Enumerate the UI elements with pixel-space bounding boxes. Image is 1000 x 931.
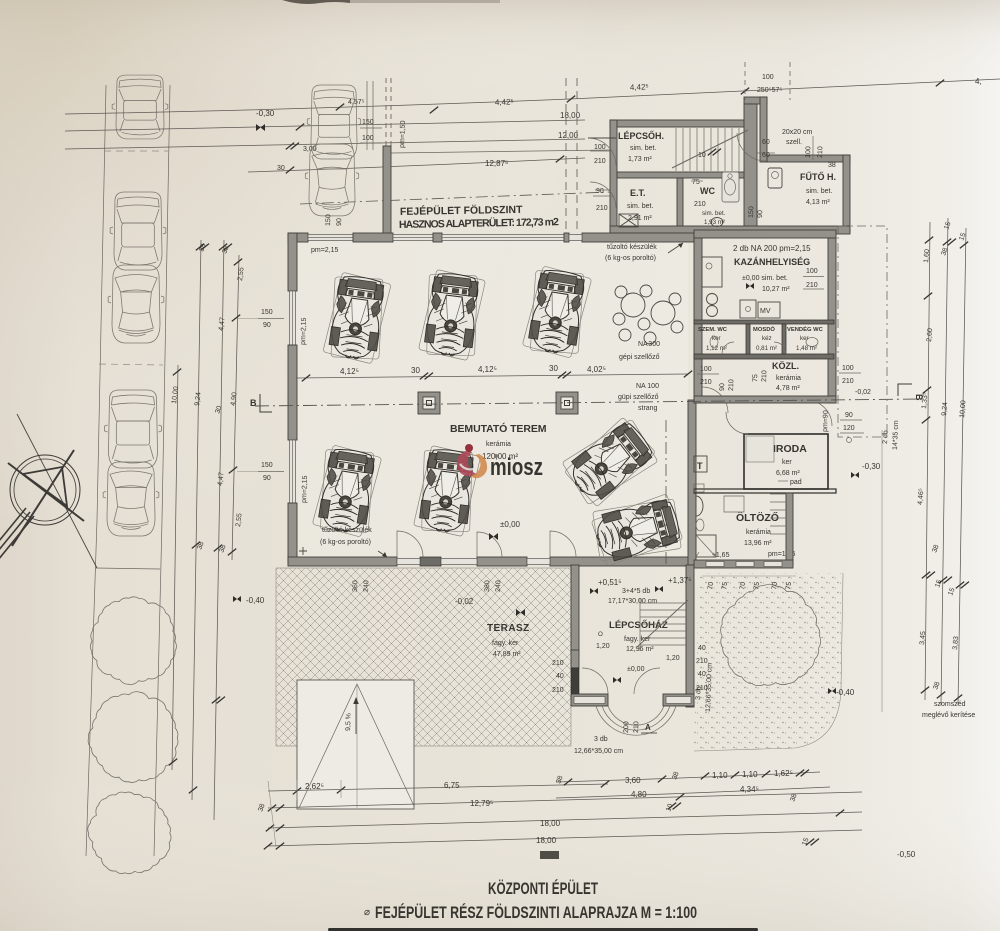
svg-text:ÖLTÖZŐ: ÖLTÖZŐ <box>736 511 779 524</box>
svg-text:BEMUTATÓ TEREM: BEMUTATÓ TEREM <box>450 422 547 435</box>
svg-text:3 db: 3 db <box>594 736 608 743</box>
svg-text:38: 38 <box>828 162 836 169</box>
svg-text:120: 120 <box>843 425 855 432</box>
svg-text:kerámia: kerámia <box>486 441 511 448</box>
svg-text:pm=90: pm=90 <box>822 410 830 432</box>
svg-text:szell.: szell. <box>786 139 802 146</box>
svg-text:1,10: 1,10 <box>712 771 728 780</box>
svg-text:210: 210 <box>596 205 608 212</box>
svg-text:210: 210 <box>700 379 712 386</box>
svg-text:meglévő kerítése: meglévő kerítése <box>922 712 975 719</box>
svg-text:MOSDÓ: MOSDÓ <box>753 325 775 333</box>
svg-text:KÖZPONTI ÉPÜLET: KÖZPONTI ÉPÜLET <box>488 879 598 898</box>
svg-text:18,00: 18,00 <box>540 819 561 828</box>
svg-text:30: 30 <box>549 364 558 373</box>
svg-text:9,5 %: 9,5 % <box>345 713 353 731</box>
svg-text:100: 100 <box>805 146 812 158</box>
svg-text:1,62⁵: 1,62⁵ <box>774 769 793 778</box>
svg-text:4,12⁵: 4,12⁵ <box>478 365 497 374</box>
svg-text:4,13 m²: 4,13 m² <box>806 199 830 206</box>
svg-text:210: 210 <box>552 660 564 667</box>
svg-text:47,89 m²: 47,89 m² <box>493 651 521 658</box>
svg-text:4,: 4, <box>975 77 982 86</box>
svg-text:10: 10 <box>698 152 706 159</box>
svg-text:210: 210 <box>806 282 818 289</box>
svg-text:3+4*5 db: 3+4*5 db <box>622 588 650 595</box>
svg-text:6,75: 6,75 <box>444 781 460 790</box>
svg-text:-0,02: -0,02 <box>855 389 871 396</box>
svg-text:-0,40: -0,40 <box>836 688 855 697</box>
svg-text:17,17*30,00 cm: 17,17*30,00 cm <box>608 598 657 605</box>
svg-text:FŰTŐ H.: FŰTŐ H. <box>800 171 836 182</box>
svg-text:12,00: 12,00 <box>558 131 579 140</box>
svg-text:90: 90 <box>719 383 726 391</box>
svg-text:FEJÉPÜLET RÉSZ FÖLDSZINTI ALAP: FEJÉPÜLET RÉSZ FÖLDSZINTI ALAPRAJZA M = … <box>375 903 697 922</box>
svg-text:pm=2,15: pm=2,15 <box>301 475 309 503</box>
svg-text:100: 100 <box>700 366 712 373</box>
svg-text:210: 210 <box>552 687 564 694</box>
svg-text:+1,37⁵: +1,37⁵ <box>668 576 692 585</box>
svg-text:LÉPCSŐH.: LÉPCSŐH. <box>618 130 664 141</box>
svg-text:75: 75 <box>721 581 729 590</box>
svg-text:210: 210 <box>761 370 768 382</box>
svg-text:±0,00 sim. bet.: ±0,00 sim. bet. <box>742 275 788 282</box>
svg-text:210: 210 <box>817 146 824 158</box>
svg-text:100: 100 <box>594 144 606 151</box>
svg-text:fagy. ker: fagy. ker <box>624 636 651 643</box>
svg-text:gépi szellőző: gépi szellőző <box>619 354 660 361</box>
svg-text:1,10: 1,10 <box>742 770 758 779</box>
svg-text:A: A <box>645 723 651 732</box>
svg-text:3,60: 3,60 <box>625 776 641 785</box>
svg-text:90: 90 <box>757 210 764 218</box>
svg-text:2,60: 2,60 <box>926 328 934 342</box>
svg-text:40: 40 <box>556 673 564 680</box>
svg-text:-0,50: -0,50 <box>897 850 916 859</box>
svg-text:75: 75 <box>753 581 761 590</box>
svg-text:100: 100 <box>806 268 818 275</box>
svg-text:⌀: ⌀ <box>364 907 370 918</box>
svg-text:-0,30: -0,30 <box>256 109 275 118</box>
svg-text:90: 90 <box>596 188 604 195</box>
svg-text:tűzoltó készülék: tűzoltó készülék <box>322 527 372 534</box>
svg-text:3,45: 3,45 <box>919 631 927 645</box>
svg-text:6,68 m²: 6,68 m² <box>776 470 800 477</box>
svg-text:SZEM. WC: SZEM. WC <box>698 327 728 333</box>
svg-text:sim. bet.: sim. bet. <box>627 203 654 210</box>
svg-text:WC: WC <box>700 186 715 196</box>
svg-text:210: 210 <box>842 378 854 385</box>
svg-text:250⁵57⁵: 250⁵57⁵ <box>757 87 782 94</box>
svg-text:90: 90 <box>263 322 271 329</box>
svg-text:1,33⁵: 1,33⁵ <box>921 392 929 409</box>
svg-text:4,02⁵: 4,02⁵ <box>587 365 606 374</box>
svg-text:NA 300: NA 300 <box>638 341 660 348</box>
svg-text:FEJÉPÜLET FÖLDSZINT: FEJÉPÜLET FÖLDSZINT <box>400 203 523 218</box>
svg-text:150: 150 <box>261 462 273 469</box>
svg-text:18,00: 18,00 <box>536 836 557 845</box>
svg-text:75: 75 <box>692 179 700 186</box>
svg-text:70: 70 <box>739 581 747 590</box>
svg-text:13,96 m²: 13,96 m² <box>744 540 772 547</box>
svg-text:4,46⁵: 4,46⁵ <box>917 488 925 505</box>
svg-text:20x20 cm: 20x20 cm <box>782 129 813 136</box>
svg-text:kerámia: kerámia <box>776 375 801 382</box>
svg-text:KÖZL.: KÖZL. <box>772 361 799 371</box>
svg-text:strang: strang <box>638 405 658 412</box>
svg-text:ker: ker <box>800 335 809 342</box>
svg-text:1,20: 1,20 <box>666 655 680 662</box>
svg-text:75: 75 <box>752 374 759 382</box>
svg-text:güpi szellőző: güpi szellőző <box>618 394 659 401</box>
svg-text:pm=2,15: pm=2,15 <box>311 247 339 254</box>
svg-text:1,73 m²: 1,73 m² <box>628 156 652 163</box>
svg-text:+0,51⁵: +0,51⁵ <box>598 578 622 587</box>
svg-text:90: 90 <box>845 412 853 419</box>
svg-text:30: 30 <box>411 366 420 375</box>
svg-text:240: 240 <box>495 580 502 592</box>
svg-text:T: T <box>697 461 703 471</box>
svg-text:4,78 m²: 4,78 m² <box>776 385 800 392</box>
svg-text:sim. bet.: sim. bet. <box>806 188 833 195</box>
svg-text:fagy. ker: fagy. ker <box>492 640 519 647</box>
svg-text:sim. bet.: sim. bet. <box>702 210 726 217</box>
svg-text:10,27 m²: 10,27 m² <box>762 286 790 293</box>
svg-text:4,34⁵: 4,34⁵ <box>740 785 759 794</box>
svg-text:100: 100 <box>842 365 854 372</box>
svg-text:150: 150 <box>325 214 332 226</box>
svg-text:ker: ker <box>782 459 792 466</box>
svg-text:NA 100: NA 100 <box>636 383 659 390</box>
svg-text:2 db NA 200 pm=2,15: 2 db NA 200 pm=2,15 <box>733 244 811 253</box>
svg-text:4,12⁵: 4,12⁵ <box>340 367 359 376</box>
svg-text:75: 75 <box>785 581 793 590</box>
svg-text:1,60: 1,60 <box>923 249 931 263</box>
svg-text:4,80: 4,80 <box>631 790 647 799</box>
svg-text:70: 70 <box>707 581 715 590</box>
svg-text:2,62⁵: 2,62⁵ <box>305 782 324 791</box>
svg-text:210: 210 <box>728 379 735 391</box>
svg-text:LÉPCSŐHÁZ: LÉPCSŐHÁZ <box>609 619 668 631</box>
svg-text:12,66*35,00 cm: 12,66*35,00 cm <box>574 748 623 755</box>
svg-text:sim. bet.: sim. bet. <box>630 145 657 152</box>
svg-text:18,00: 18,00 <box>560 111 581 120</box>
svg-text:kéz: kéz <box>762 335 772 342</box>
svg-text:1,12 m²: 1,12 m² <box>706 345 727 352</box>
svg-text:100: 100 <box>362 135 374 142</box>
svg-text:90: 90 <box>263 475 271 482</box>
svg-text:60: 60 <box>762 139 770 146</box>
svg-text:90: 90 <box>336 218 343 226</box>
svg-text:(6 kg-os poroltó): (6 kg-os poroltó) <box>605 255 656 262</box>
svg-text:E.T.: E.T. <box>630 188 646 198</box>
svg-text:VENDÉG WC: VENDÉG WC <box>787 325 824 333</box>
svg-text:4,42⁵: 4,42⁵ <box>495 97 514 107</box>
svg-text:200: 200 <box>623 721 630 733</box>
svg-text:150: 150 <box>748 206 755 218</box>
svg-text:12,79⁵: 12,79⁵ <box>470 799 493 808</box>
svg-text:miosz: miosz <box>490 454 543 481</box>
svg-text:-0,02: -0,02 <box>455 597 474 606</box>
svg-text:100: 100 <box>762 74 774 81</box>
svg-text:B: B <box>250 398 257 408</box>
svg-text:-0,30: -0,30 <box>862 462 881 471</box>
svg-text:kerámia: kerámia <box>746 529 771 536</box>
svg-text:12,87⁵: 12,87⁵ <box>485 159 508 168</box>
svg-text:2 db: 2 db <box>882 430 889 444</box>
svg-text:70: 70 <box>771 581 779 590</box>
svg-text:0,81 m²: 0,81 m² <box>756 345 777 352</box>
svg-text:MV: MV <box>760 308 771 315</box>
svg-text:9,24: 9,24 <box>941 402 949 416</box>
svg-text:240: 240 <box>363 580 370 592</box>
svg-text:szomszéd: szomszéd <box>934 701 966 708</box>
svg-text:210: 210 <box>694 201 706 208</box>
svg-text:pm=2,15: pm=2,15 <box>300 317 308 345</box>
svg-text:1,20: 1,20 <box>596 643 610 650</box>
svg-text:360: 360 <box>484 580 491 592</box>
svg-text:O: O <box>598 631 603 638</box>
svg-text:210: 210 <box>594 158 606 165</box>
svg-text:pm=1,50: pm=1,50 <box>399 120 407 148</box>
svg-text:(6 kg-os poroltó): (6 kg-os poroltó) <box>320 539 371 546</box>
svg-text:150: 150 <box>261 309 273 316</box>
svg-text:TERASZ: TERASZ <box>487 623 530 634</box>
svg-text:tűzoltó készülék: tűzoltó készülék <box>607 244 657 251</box>
svg-text:4,42⁵: 4,42⁵ <box>630 82 649 92</box>
svg-text:360: 360 <box>352 580 359 592</box>
svg-text:KAZÁNHELYISÉG: KAZÁNHELYISÉG <box>734 257 810 267</box>
svg-text:150: 150 <box>362 119 374 126</box>
svg-text:±0,00: ±0,00 <box>500 520 521 529</box>
svg-text:14*35 cm: 14*35 cm <box>892 420 900 450</box>
svg-text:±0,00: ±0,00 <box>627 666 645 673</box>
svg-text:pad: pad <box>790 479 802 486</box>
svg-text:210: 210 <box>633 721 640 733</box>
svg-text:IRODA: IRODA <box>773 443 807 455</box>
svg-text:-0,40: -0,40 <box>246 596 265 605</box>
